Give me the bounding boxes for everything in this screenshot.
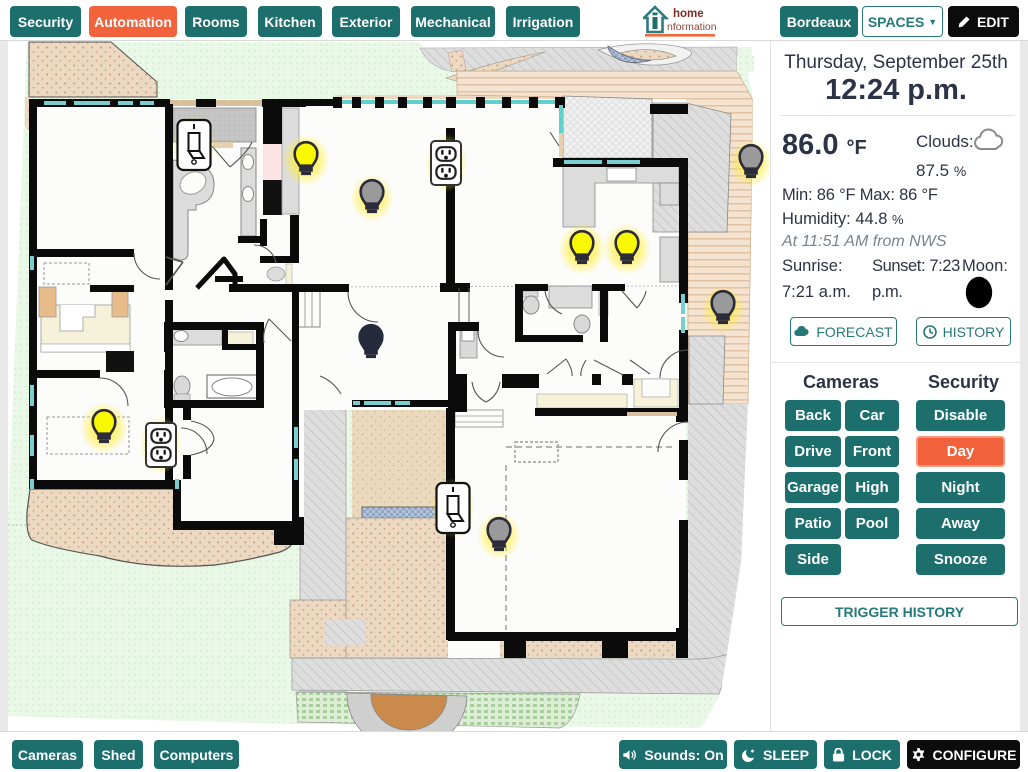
- svg-text:home: home: [673, 8, 704, 20]
- svg-text:nformation: nformation: [667, 21, 717, 33]
